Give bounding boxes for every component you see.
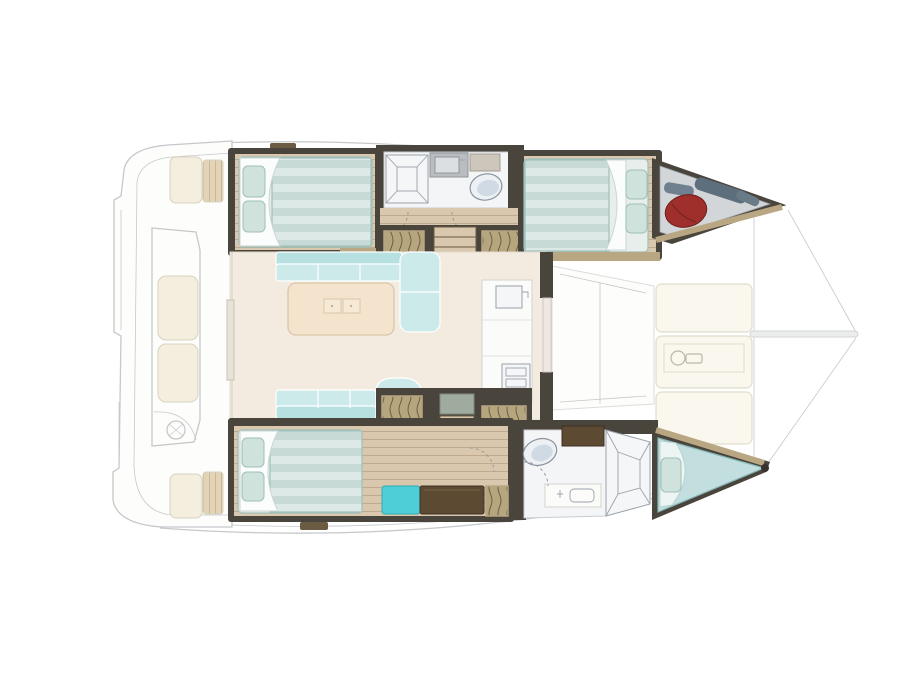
sofa-seat: [276, 264, 402, 281]
foredeck: [552, 266, 752, 444]
galley-sink: [496, 286, 522, 308]
bowsprit: [750, 331, 858, 337]
port-bathroom: [376, 145, 524, 213]
bathroom-shelf: [562, 426, 604, 446]
washbasin: [435, 157, 459, 173]
catamaran-floorplan: [0, 0, 900, 675]
bed-mattress: [272, 158, 371, 246]
forward-door-panel: [543, 298, 551, 372]
cockpit-corner-seat-back: [203, 160, 223, 202]
cockpit-bench-cushion: [158, 276, 198, 340]
sofa-seat: [276, 390, 376, 408]
bed-pillow: [242, 438, 264, 467]
floorplan-canvas: [0, 0, 900, 675]
vanity-desk: [382, 486, 484, 514]
starboard-bathroom: [514, 420, 658, 520]
wardrobe-hatch: [486, 486, 508, 516]
bed-pillow: [243, 166, 265, 197]
table-handle-dot: [331, 305, 333, 307]
berth-pillow: [661, 458, 681, 492]
vanity-stool-teal: [382, 486, 420, 514]
trampoline-edge-top: [788, 210, 856, 332]
port-forward-cabin: [518, 150, 662, 261]
bed-mattress: [270, 431, 362, 512]
forward-wall: [540, 252, 553, 298]
starboard-aft-cabin: [228, 418, 514, 522]
aft-sliding-door-panel: [227, 300, 234, 380]
forward-wall: [540, 372, 553, 420]
bathroom-shelf: [470, 154, 500, 171]
galley: [482, 280, 532, 402]
bed-pillow: [243, 201, 265, 232]
bed-pillow: [626, 204, 647, 233]
sofa-backrest: [276, 406, 376, 419]
cockpit-corner-seat-cushion: [170, 157, 202, 203]
cabin-trim: [548, 252, 660, 261]
trampoline-edge-bottom: [766, 338, 856, 466]
shower-stall: [606, 430, 650, 516]
salon-table: [288, 283, 394, 335]
foredeck-walkway: [552, 266, 654, 410]
vanity-counter: [545, 484, 601, 507]
bed-pillow: [242, 472, 264, 501]
foredeck-sunpad: [656, 284, 752, 332]
bed-mattress: [525, 160, 609, 251]
bow-tip-fitting: [761, 464, 769, 472]
stair-landing: [440, 394, 474, 414]
cockpit-corner-seat-back: [203, 472, 223, 514]
deck-hatch: [300, 522, 328, 530]
bed-pillow: [626, 170, 647, 199]
cockpit-bench-cushion: [158, 344, 198, 402]
cockpit-corner-seat-cushion: [170, 474, 202, 518]
port-bow-locker: [652, 158, 786, 244]
table-handle-dot: [350, 305, 352, 307]
